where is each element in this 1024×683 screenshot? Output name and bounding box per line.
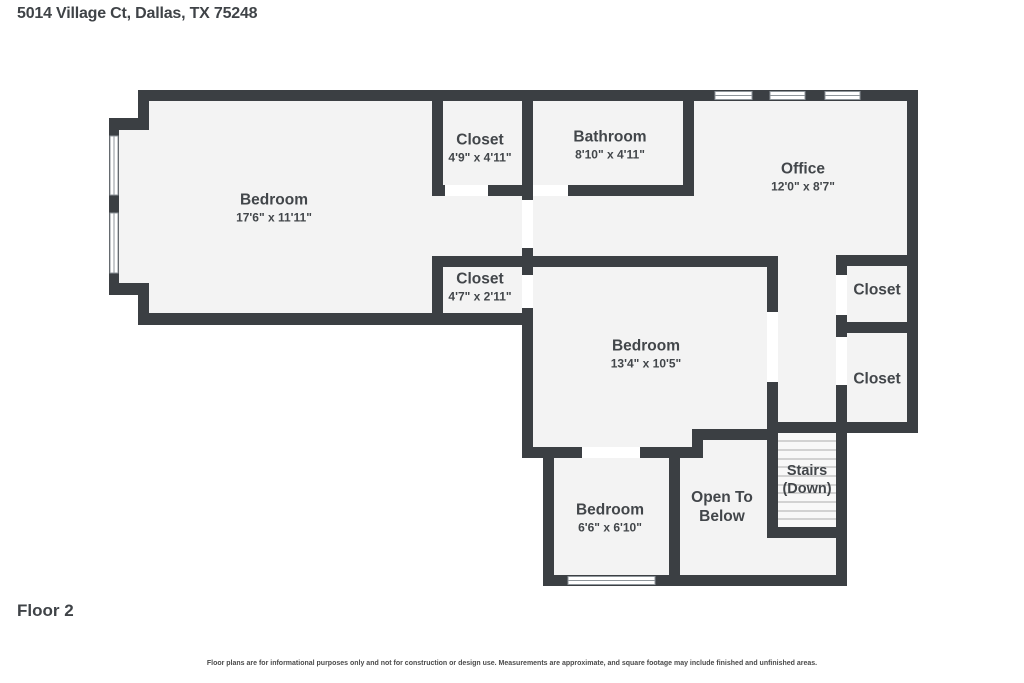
area-label-line: Open To: [691, 488, 753, 507]
window-bottom: [568, 577, 655, 585]
room-name: Closet: [853, 281, 900, 300]
room-label-closet-mid: Closet 4'7" x 2'11": [448, 270, 511, 305]
area-label-line: (Down): [782, 480, 831, 498]
window-left-lower: [110, 213, 118, 273]
room-label-office: Office 12'0" x 8'7": [771, 160, 835, 195]
room-name: Closet: [853, 370, 900, 389]
room-name: Bedroom: [611, 337, 681, 356]
room-label-closet-right-lower: Closet: [853, 370, 900, 389]
room-name: Office: [771, 160, 835, 179]
room-label-bedroom-middle: Bedroom 13'4" x 10'5": [611, 337, 681, 372]
room-dims: 4'7" x 2'11": [448, 289, 511, 305]
room-label-bedroom-left: Bedroom 17'6" x 11'11": [236, 191, 312, 226]
area-label-stairs: Stairs (Down): [782, 462, 831, 498]
floor-plan-drawing: [0, 0, 1024, 683]
window-left-upper: [110, 136, 118, 195]
floor-plan-page: 5014 Village Ct, Dallas, TX 75248: [0, 0, 1024, 683]
room-dims: 13'4" x 10'5": [611, 356, 681, 372]
room-dims: 12'0" x 8'7": [771, 179, 835, 195]
area-label-line: Stairs: [782, 462, 831, 480]
room-name: Closet: [448, 131, 511, 150]
area-label-line: Below: [691, 507, 753, 526]
room-name: Bathroom: [573, 128, 646, 147]
area-label-open-to-below: Open To Below: [691, 488, 753, 526]
room-name: Bedroom: [576, 501, 644, 520]
window-top-3: [825, 92, 860, 100]
room-label-bedroom-small: Bedroom 6'6" x 6'10": [576, 501, 644, 536]
room-label-closet-right-upper: Closet: [853, 281, 900, 300]
room-label-closet-top: Closet 4'9" x 4'11": [448, 131, 511, 166]
room-name: Closet: [448, 270, 511, 289]
room-dims: 17'6" x 11'11": [236, 210, 312, 226]
disclaimer-text: Floor plans are for informational purpos…: [0, 660, 1024, 667]
room-dims: 8'10" x 4'11": [573, 147, 646, 163]
room-name: Bedroom: [236, 191, 312, 210]
floor-label: Floor 2: [17, 601, 74, 621]
room-dims: 4'9" x 4'11": [448, 150, 511, 166]
window-top-1: [715, 92, 752, 100]
room-dims: 6'6" x 6'10": [576, 520, 644, 536]
window-top-2: [770, 92, 805, 100]
room-label-bathroom: Bathroom 8'10" x 4'11": [573, 128, 646, 163]
